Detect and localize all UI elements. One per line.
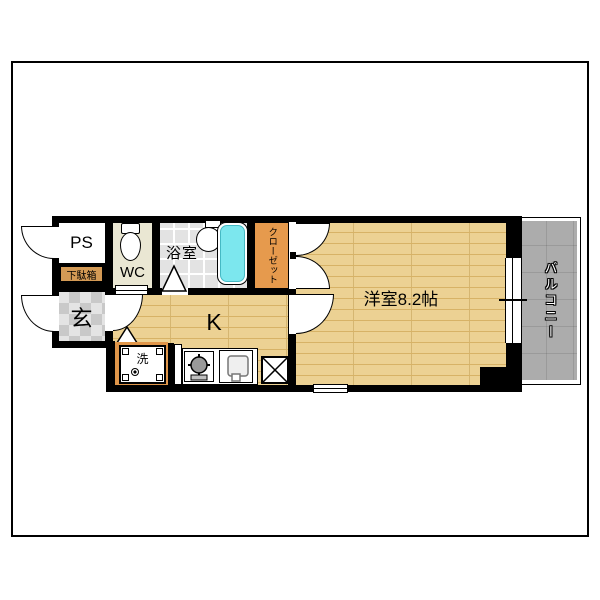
bathroom-label: 浴室 [160,242,204,262]
room-door-opening [289,295,296,334]
washer-drain-icon [131,368,139,376]
ps-label: PS [58,224,105,261]
wall-segment [52,341,113,348]
washing-machine-label: 洗 [120,350,165,366]
wc-label: WC [113,262,152,282]
bathtub-water [220,225,245,282]
shoe-cabinet-label: 下駄箱 [60,266,103,282]
balcony-label: バルコニー [534,225,566,377]
stove-icon [184,351,214,382]
wall-segment [52,216,522,223]
wc-door-line [116,290,147,291]
bathtub-icon [217,222,248,285]
closet-label: クローゼット [257,223,286,287]
kitchen-label: K [195,306,233,338]
refrigerator-space-icon [261,356,289,384]
wall-segment [247,216,255,295]
wall-segment [480,367,522,392]
bathroom-door-marker [159,264,189,294]
kitchen-side-slot [174,344,182,385]
sink-icon [219,350,253,383]
floor-plan-canvas: PS 下駄箱 玄 WC 浴室 クローゼット K 洗 洋室8.2帖 バルコニー [0,0,600,600]
south-window [313,384,348,393]
western-room-label: 洋室8.2帖 [296,286,506,308]
entrance-label: 玄 [60,302,103,332]
south-window-line [314,388,347,389]
